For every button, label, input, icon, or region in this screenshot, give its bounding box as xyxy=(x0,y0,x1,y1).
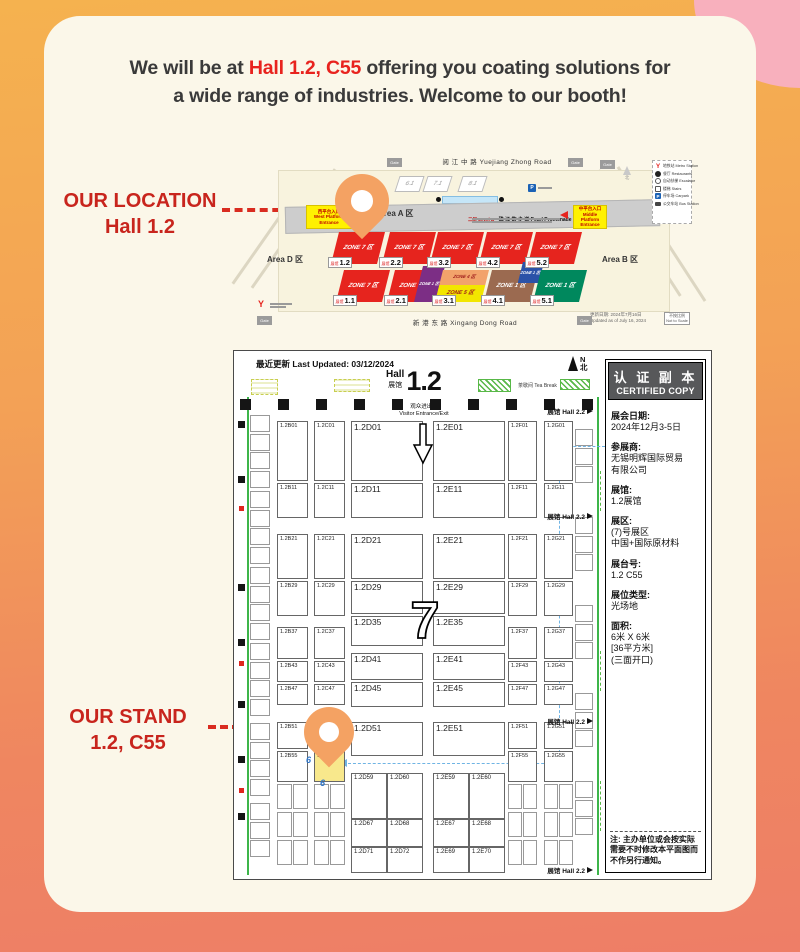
sidebar-field: 展位类型:光场地 xyxy=(611,588,700,612)
hall-chip-number: 2.2 xyxy=(391,258,401,267)
zone-7-text: 7 xyxy=(411,592,440,647)
stand-size-label: 6 xyxy=(320,778,325,788)
booth-cell xyxy=(575,554,593,571)
hall-number-chip: 展馆4.1 xyxy=(481,295,505,306)
parking-icon: P xyxy=(528,184,536,192)
booth-cell xyxy=(250,840,270,857)
hall-chip-prefix: 展馆 xyxy=(528,261,536,267)
plant-decor xyxy=(560,379,590,390)
booth-1.2B29: 1.2B29 xyxy=(277,581,308,616)
zone-label: ZONE 7 区 xyxy=(394,245,425,252)
booth-cell xyxy=(250,604,270,621)
hall-title-en: Hall xyxy=(386,369,404,380)
booth-1.2F51: 1.2F51 xyxy=(508,722,537,749)
booth-cell xyxy=(250,434,270,451)
booth-1.2G51: 1.2G51 xyxy=(544,722,573,749)
headline-line2: a wide range of industries. Welcome to o… xyxy=(173,85,627,107)
headline-pre: We will be at xyxy=(130,57,249,79)
certified-copy-sidebar: 认 证 副 本 CERTIFIED COPY 展会日期:2024年12月3-5日… xyxy=(605,359,706,873)
legend-label: 公交车站 Bus Station xyxy=(663,201,699,207)
hall-chip-number: 3.1 xyxy=(444,296,454,305)
floor-plan-last-updated: 最近更新 Last Updated: 03/12/2024 xyxy=(256,358,394,370)
hall-number-chip: 展馆5.2 xyxy=(525,257,549,268)
wall-column xyxy=(468,399,479,410)
booth-cell xyxy=(250,699,270,716)
booth-cell xyxy=(559,840,573,865)
booth-cell xyxy=(575,429,593,446)
location-callout: OUR LOCATION Hall 1.2 xyxy=(55,188,225,240)
map-update-note: 更新日期: 2024年7月16日 Updated as of July 16, … xyxy=(590,312,646,323)
booth-1.2E67: 1.2E67 xyxy=(433,819,469,847)
wall-column xyxy=(238,639,245,646)
legend-label: 餐厅 Restaurants xyxy=(663,171,692,177)
entrance-down-arrow-icon xyxy=(412,423,434,465)
wall-column xyxy=(238,813,245,820)
booth-1.2E45: 1.2E45 xyxy=(433,682,505,707)
legend-item-metro: Y地铁站 Metro Station xyxy=(655,163,689,169)
hall-chip-number: 2.1 xyxy=(396,296,406,305)
booth-1.2E70: 1.2E70 xyxy=(469,847,505,873)
right-arrow-icon xyxy=(587,867,593,873)
booth-cell xyxy=(250,723,270,740)
zone-label: ZONE 4 区 xyxy=(453,275,476,280)
booth-cell xyxy=(293,784,308,809)
hall-chip-number: 5.1 xyxy=(542,296,552,305)
booth-cell xyxy=(250,471,270,488)
stand-pin xyxy=(304,707,354,757)
north-label: 北 xyxy=(625,175,630,181)
booth-cell xyxy=(544,840,558,865)
entrance-arrow-icon xyxy=(560,211,568,219)
metro-station-icon: Y xyxy=(258,299,264,309)
hall-chip-number: 4.1 xyxy=(493,296,503,305)
hall-number-chip: 展馆1.2 xyxy=(328,257,352,268)
field-label: 参展商: xyxy=(611,440,700,453)
booth-1.2C43: 1.2C43 xyxy=(314,661,345,682)
booth-1.2G21: 1.2G21 xyxy=(544,534,573,579)
building-6.1: 6.1 xyxy=(394,176,424,192)
booth-1.2C37: 1.2C37 xyxy=(314,627,345,659)
booth-1.2F29: 1.2F29 xyxy=(508,581,537,616)
hall-chip-number: 5.2 xyxy=(537,258,547,267)
booth-cell xyxy=(330,784,345,809)
top-road-label: 阅 江 中 路 Yuejiang Zhong Road xyxy=(397,156,597,166)
booth-cell xyxy=(575,624,593,641)
green-wall-left xyxy=(247,397,249,875)
booth-cell xyxy=(544,784,558,809)
hall-chip-prefix: 展馆 xyxy=(382,261,390,267)
legend-label: 自动扶梯 Escalator xyxy=(663,178,695,184)
parking-microtext xyxy=(538,187,552,189)
zone-label: ZONE 7 区 xyxy=(491,245,522,252)
booth-1.2E01: 1.2E01 xyxy=(433,421,505,481)
hall-zone-top: ZONE 4 区 xyxy=(439,270,489,285)
stand-callout-value: 1.2, C55 xyxy=(48,730,208,756)
booth-1.2C01: 1.2C01 xyxy=(314,421,345,481)
booth-1.2F43: 1.2F43 xyxy=(508,661,537,682)
wall-column xyxy=(506,399,517,410)
booth-1.2D67: 1.2D67 xyxy=(351,819,387,847)
booth-cell xyxy=(523,784,537,809)
booth-cell xyxy=(314,812,329,837)
booth-cell xyxy=(575,800,593,817)
hall-4.1: ZONE 1 区ZONE 1 区展馆4.1 xyxy=(488,270,534,302)
booth-1.2D11: 1.2D11 xyxy=(351,483,423,518)
hall-3.1: ZONE 4 区ZONE 5 区展馆3.1 xyxy=(439,270,485,302)
booth-cell xyxy=(250,567,270,584)
booth-cell xyxy=(575,605,593,622)
location-pin xyxy=(335,174,389,228)
booth-1.2C11: 1.2C11 xyxy=(314,483,345,518)
field-label: 展位类型: xyxy=(611,588,700,601)
not-to-scale-box: 不按比例 Not to Scale xyxy=(664,312,690,325)
hall-2-2-text: 展馆 Hall 2.2 xyxy=(547,406,585,416)
booth-cell xyxy=(523,840,537,865)
booth-cell xyxy=(523,812,537,837)
certified-copy-header: 认 证 副 本 CERTIFIED COPY xyxy=(608,362,703,400)
wall-column xyxy=(238,756,245,763)
booth-cell xyxy=(250,415,270,432)
headline-post: offering you coating solutions for xyxy=(361,57,670,79)
booth-cell xyxy=(575,642,593,659)
bus-icon xyxy=(655,202,661,206)
sidebar-field: 展会日期:2024年12月3-5日 xyxy=(611,409,700,433)
hall-2-2-text: 展馆 Hall 2.2 xyxy=(547,716,585,726)
hall-chip-prefix: 展馆 xyxy=(331,261,339,267)
booth-cell xyxy=(250,643,270,660)
hall-chip-number: 3.2 xyxy=(439,258,449,267)
hall-2-2-label: 展馆 Hall 2.2 xyxy=(547,406,593,416)
booth-cell xyxy=(250,547,270,564)
stand-callout: OUR STAND 1.2, C55 xyxy=(48,704,208,756)
building-7.1: 7.1 xyxy=(422,176,452,192)
wall-column xyxy=(238,584,245,591)
booth-cell xyxy=(508,812,522,837)
booth-1.2B01: 1.2B01 xyxy=(277,421,308,481)
field-value: 光场地 xyxy=(611,601,700,612)
tea-break-label: 茶歇间 Tea Break xyxy=(518,382,557,389)
escalator-dot-left xyxy=(436,197,441,202)
booth-cell xyxy=(250,822,270,839)
hall-chip-number: 1.1 xyxy=(345,296,355,305)
north-arrow-icon xyxy=(623,166,631,175)
booth-cell xyxy=(575,536,593,553)
certified-copy-title-cn: 认 证 副 本 xyxy=(609,367,702,386)
sidebar-field: 展区:(7)号展区 中国+国际原材料 xyxy=(611,514,700,550)
booth-1.2E60: 1.2E60 xyxy=(469,773,505,819)
promenade-microtext xyxy=(472,221,552,223)
right-arrow-icon xyxy=(587,408,593,414)
compass-arrow-icon xyxy=(568,356,578,371)
metro-icon: Y xyxy=(655,163,661,169)
location-callout-value: Hall 1.2 xyxy=(55,214,225,240)
booth-1.2C21: 1.2C21 xyxy=(314,534,345,579)
gate-label: Gate xyxy=(568,158,583,167)
hall-chip-prefix: 展馆 xyxy=(387,299,395,305)
certified-copy-title-en: CERTIFIED COPY xyxy=(609,386,702,396)
booth-cell xyxy=(293,840,308,865)
booth-1.2B47: 1.2B47 xyxy=(277,684,308,705)
hall-chip-prefix: 展馆 xyxy=(336,299,344,305)
zone-label: ZONE 7 区 xyxy=(442,245,473,252)
hall-2.1: ZONE 7 区ZONE 1 区展馆2.1 xyxy=(391,270,437,302)
sidebar-field: 展台号:1.2 C55 xyxy=(611,557,700,581)
promenade-microtext xyxy=(472,218,560,220)
hall-title-cn: 展馆 xyxy=(386,380,404,390)
booth-1.2E11: 1.2E11 xyxy=(433,483,505,518)
wall-column xyxy=(240,399,251,410)
bottom-road-label: 新 港 东 路 Xingang Dong Road xyxy=(365,317,565,327)
headline: We will be at Hall 1.2, C55 offering you… xyxy=(0,54,800,111)
hall-1.2: ZONE 7 区展馆1.2 xyxy=(335,232,381,264)
legend-label: 地铁站 Metro Station xyxy=(663,163,698,169)
field-label: 面积: xyxy=(611,619,700,632)
field-label: 展区: xyxy=(611,514,700,527)
wall-column xyxy=(278,399,289,410)
door-marker xyxy=(239,788,244,793)
map-legend: Y地铁站 Metro Station餐厅 Restaurants自动扶梯 Esc… xyxy=(652,160,692,224)
middle-platform-entrance: 中平台入口 Middle Platform Entrance xyxy=(573,205,607,229)
zone-label: ZONE 7 区 xyxy=(343,245,374,252)
zone-7-number: 7 xyxy=(402,589,448,647)
hall-number-chip: 展馆3.2 xyxy=(427,257,451,268)
map-north-compass: 北 xyxy=(623,166,631,181)
booth-cell xyxy=(575,818,593,835)
wall-column xyxy=(238,476,245,483)
hall-chip-prefix: 展馆 xyxy=(435,299,443,305)
field-label: 展台号: xyxy=(611,557,700,570)
area-b-label: Area B 区 xyxy=(602,254,638,265)
hall-number-chip: 展馆2.1 xyxy=(384,295,408,306)
booth-cell xyxy=(250,528,270,545)
hall-2-2-label: 展馆 Hall 2.2 xyxy=(547,511,593,521)
booth-cell xyxy=(544,812,558,837)
plant-line xyxy=(600,651,601,691)
booth-cell xyxy=(250,452,270,469)
site-overview-map: 阅 江 中 路 Yuejiang Zhong Road 新 港 东 路 Xing… xyxy=(240,146,692,338)
hall-title-number: 1.2 xyxy=(406,369,441,395)
booth-1.2D51: 1.2D51 xyxy=(351,722,423,756)
gate-label: Gate xyxy=(257,316,272,325)
hall-floor-plan: 最近更新 Last Updated: 03/12/2024 Hall 展馆 1.… xyxy=(233,350,712,880)
zone-label: ZONE 7 区 xyxy=(348,283,379,290)
field-value: 2024年12月3-5日 xyxy=(611,422,700,433)
plant-line xyxy=(600,471,601,511)
booth-1.2E41: 1.2E41 xyxy=(433,653,505,680)
field-value: 1.2 C55 xyxy=(611,570,700,581)
right-arrow-icon xyxy=(587,718,593,724)
restaurant-icon xyxy=(655,171,661,177)
booth-1.2F55: 1.2F55 xyxy=(508,751,537,782)
booth-1.2C47: 1.2C47 xyxy=(314,684,345,705)
booth-1.2F47: 1.2F47 xyxy=(508,684,537,705)
field-label: 展馆: xyxy=(611,483,700,496)
hall-chip-number: 4.2 xyxy=(488,258,498,267)
promenade-label: 二层 Level B 珠 江 散 步 道 Pearl Promenade xyxy=(468,208,572,226)
booth-1.2E21: 1.2E21 xyxy=(433,534,505,579)
sidebar-field: 面积:6米 X 6米 [36平方米] (三面开口) xyxy=(611,619,700,666)
booth-cell xyxy=(250,510,270,527)
wall-column xyxy=(316,399,327,410)
hall-chip-number: 1.2 xyxy=(340,258,350,267)
booth-1.2F11: 1.2F11 xyxy=(508,483,537,518)
metro-microtext xyxy=(270,303,292,305)
zone-label: ZONE 7 区 xyxy=(540,245,571,252)
location-callout-title: OUR LOCATION xyxy=(55,188,225,214)
booth-cell xyxy=(277,784,292,809)
hall-2-2-label: 展馆 Hall 2.2 xyxy=(547,716,593,726)
booth-cell xyxy=(250,760,270,777)
booth-cell xyxy=(314,840,329,865)
legend-item-restaurant: 餐厅 Restaurants xyxy=(655,171,689,177)
booth-cell xyxy=(575,730,593,747)
compass-cn: 北 xyxy=(580,364,588,372)
booth-cell xyxy=(293,812,308,837)
booth-1.2F37: 1.2F37 xyxy=(508,627,537,659)
hall-title: Hall 展馆 1.2 xyxy=(386,369,441,395)
booth-cell xyxy=(277,812,292,837)
gate-label: Gate xyxy=(577,316,592,325)
booth-1.2E69: 1.2E69 xyxy=(433,847,469,873)
booth-1.2G37: 1.2G37 xyxy=(544,627,573,659)
booth-cell xyxy=(330,840,345,865)
booth-1.2D21: 1.2D21 xyxy=(351,534,423,579)
zone-label: ZONE 1 区 xyxy=(545,283,576,290)
sidebar-note: 注: 主办单位或会按实际 需要不时修改本平面图而 不作另行通知。 xyxy=(610,831,701,867)
hall-3.2: ZONE 7 区展馆3.2 xyxy=(434,232,480,264)
hall-number-chip: 展馆5.1 xyxy=(530,295,554,306)
booth-1.2B37: 1.2B37 xyxy=(277,627,308,659)
hall-number-chip: 展馆4.2 xyxy=(476,257,500,268)
parking-icon: P xyxy=(655,193,661,199)
booth-1.2D41: 1.2D41 xyxy=(351,653,423,680)
hall-5.1: ZONE 1 区展馆5.1 xyxy=(537,270,583,302)
booth-1.2D72: 1.2D72 xyxy=(387,847,423,873)
booth-cell xyxy=(250,662,270,679)
booth-1.2F01: 1.2F01 xyxy=(508,421,537,481)
booth-1.2G43: 1.2G43 xyxy=(544,661,573,682)
building-8.1: 8.1 xyxy=(457,176,487,192)
exhibition-details: 展会日期:2024年12月3-5日参展商:无锡明辉国际贸易 有限公司展馆:1.2… xyxy=(606,402,705,831)
plant-decor xyxy=(478,379,511,392)
booth-1.2B11: 1.2B11 xyxy=(277,483,308,518)
booth-1.2D71: 1.2D71 xyxy=(351,847,387,873)
booth-1.2D68: 1.2D68 xyxy=(387,819,423,847)
wall-column xyxy=(392,399,403,410)
booth-cell xyxy=(250,586,270,603)
gate-label: Gate xyxy=(387,158,402,167)
booth-1.2G47: 1.2G47 xyxy=(544,684,573,705)
booth-cell xyxy=(575,448,593,465)
hall-chip-prefix: 展馆 xyxy=(479,261,487,267)
right-arrow-icon xyxy=(587,513,593,519)
headline-highlight: Hall 1.2, C55 xyxy=(249,57,361,79)
booth-cell xyxy=(250,491,270,508)
legend-item-parking: P停车场 Carpark xyxy=(655,193,689,199)
stairs-icon xyxy=(655,186,661,192)
hall-2-2-text: 展馆 Hall 2.2 xyxy=(547,511,585,521)
booth-cell xyxy=(559,784,573,809)
legend-label: 停车场 Carpark xyxy=(663,193,689,199)
booth-cell xyxy=(575,466,593,483)
wall-column xyxy=(238,421,245,428)
field-value: 无锡明辉国际贸易 有限公司 xyxy=(611,453,700,476)
booth-cell xyxy=(575,693,593,710)
wall-column xyxy=(430,399,441,410)
sidebar-field: 展馆:1.2展馆 xyxy=(611,483,700,507)
booth-cell xyxy=(250,742,270,759)
zone-label: ZONE 1 区 xyxy=(496,283,527,290)
wall-column xyxy=(354,399,365,410)
plant-line xyxy=(600,781,601,831)
door-marker xyxy=(239,661,244,666)
stairs-decor xyxy=(251,379,278,395)
booth-cell xyxy=(508,784,522,809)
legend-label: 楼梯 Stairs xyxy=(663,186,681,192)
field-value: 6米 X 6米 [36平方米] (三面开口) xyxy=(611,632,700,666)
hall-2-2-text: 展馆 Hall 2.2 xyxy=(547,865,585,875)
escalator-dot-right xyxy=(499,197,504,202)
area-d-label: Area D 区 xyxy=(267,254,303,265)
legend-item-escalator: 自动扶梯 Escalator xyxy=(655,178,689,184)
stand-size-label: 6 xyxy=(306,755,311,765)
stairs-decor xyxy=(334,379,370,392)
hall-2-2-label: 展馆 Hall 2.2 xyxy=(547,865,593,875)
hall-5.2: ZONE 7 区展馆5.2 xyxy=(532,232,578,264)
stand-callout-title: OUR STAND xyxy=(48,704,208,730)
booth-cell xyxy=(250,680,270,697)
hall-chip-prefix: 展馆 xyxy=(430,261,438,267)
field-label: 展会日期: xyxy=(611,409,700,422)
booth-1.2E51: 1.2E51 xyxy=(433,722,505,756)
booth-cell xyxy=(330,812,345,837)
legend-item-bus: 公交车站 Bus Station xyxy=(655,201,689,207)
booth-1.2F21: 1.2F21 xyxy=(508,534,537,579)
hall-2.2: ZONE 7 区展馆2.2 xyxy=(386,232,432,264)
field-value: (7)号展区 中国+国际原材料 xyxy=(611,527,700,550)
hall-chip-prefix: 展馆 xyxy=(533,299,541,305)
green-wall-right xyxy=(597,397,599,875)
sidebar-field: 参展商:无锡明辉国际贸易 有限公司 xyxy=(611,440,700,476)
legend-item-stairs: 楼梯 Stairs xyxy=(655,186,689,192)
booth-1.2D45: 1.2D45 xyxy=(351,682,423,707)
booth-1.2G55: 1.2G55 xyxy=(544,751,573,782)
booth-1.2G29: 1.2G29 xyxy=(544,581,573,616)
hall-chip-prefix: 展馆 xyxy=(484,299,492,305)
booth-1.2B43: 1.2B43 xyxy=(277,661,308,682)
floor-plan-compass: N 北 xyxy=(568,356,588,373)
booth-cell xyxy=(277,840,292,865)
booth-cell xyxy=(508,840,522,865)
hall-number-chip: 展馆1.1 xyxy=(333,295,357,306)
door-marker xyxy=(239,506,244,511)
hall-number-chip: 展馆3.1 xyxy=(432,295,456,306)
hall-1.1: ZONE 7 区展馆1.1 xyxy=(340,270,386,302)
booth-1.2C29: 1.2C29 xyxy=(314,581,345,616)
gate-label: Gate xyxy=(600,160,615,169)
booth-cell xyxy=(559,812,573,837)
booth-1.2E68: 1.2E68 xyxy=(469,819,505,847)
booth-cell xyxy=(575,781,593,798)
zone-label: ZONE 1 区 xyxy=(419,282,440,286)
booth-1.2B21: 1.2B21 xyxy=(277,534,308,579)
booth-cell xyxy=(250,779,270,796)
field-value: 1.2展馆 xyxy=(611,496,700,507)
booth-1.2D60: 1.2D60 xyxy=(387,773,423,819)
metro-microtext xyxy=(270,306,286,308)
hall-4.2: ZONE 7 区展馆4.2 xyxy=(483,232,529,264)
booth-cell xyxy=(250,803,270,820)
